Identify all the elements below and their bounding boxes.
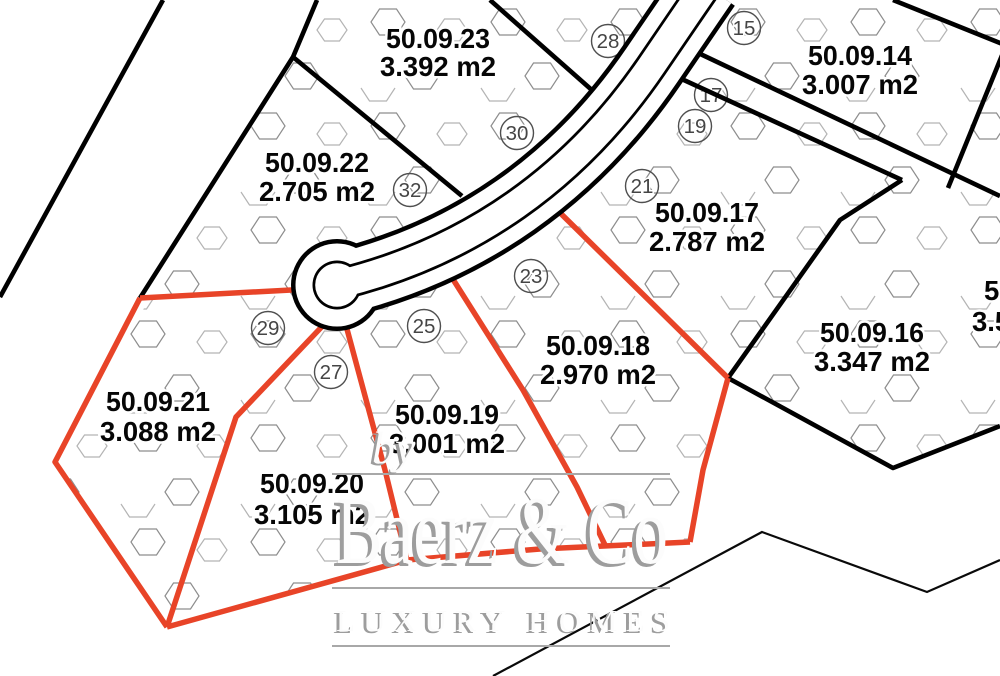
parcel-area: 3.007 m2: [802, 69, 918, 100]
marker-number: 23: [520, 265, 543, 288]
marker-number: 15: [733, 17, 756, 40]
parcel-id: 50.09.21: [106, 386, 210, 417]
parcel-area: 3.392 m2: [380, 51, 496, 82]
marker-number: 27: [320, 361, 343, 384]
parcel-area: 3.5: [972, 306, 1000, 337]
marker-number: 28: [597, 30, 620, 53]
cadastral-parcel-map: 15 17 19 21 23 25 27 28: [0, 0, 1000, 676]
parcel-id: 50.09.17: [655, 197, 759, 228]
parcel-id: 50: [984, 275, 1000, 306]
marker-number: 30: [506, 122, 529, 145]
watermark-brand: Baerz & Co: [336, 477, 668, 584]
parcel-label-50-09-14: 50.09.14 3.007 m2: [802, 40, 918, 100]
parcel-id: 50.09.23: [386, 23, 490, 54]
parcel-area: 2.970 m2: [540, 359, 656, 390]
parcel-label-50-09-18: 50.09.18 2.970 m2: [540, 330, 656, 390]
parcel-id: 50.09.16: [820, 317, 924, 348]
parcel-label-50-09-16: 50.09.16 3.347 m2: [814, 317, 930, 377]
watermark-by: by: [372, 422, 416, 473]
marker-number: 19: [684, 115, 707, 138]
parcel-id: 50.09.14: [808, 40, 913, 71]
marker-number: 29: [257, 317, 280, 340]
parcel-label-50-09-23: 50.09.23 3.392 m2: [380, 23, 496, 82]
parcel-label-50-09-21: 50.09.21 3.088 m2: [100, 386, 216, 447]
parcel-label-50-09-17: 50.09.17 2.787 m2: [649, 197, 765, 257]
marker-number: 25: [413, 315, 436, 338]
marker-number: 32: [399, 179, 422, 202]
marker-number: 21: [631, 175, 654, 198]
parcel-id: 50.09.22: [265, 147, 369, 178]
parcel-area: 2.705 m2: [259, 176, 375, 207]
parcel-area: 3.347 m2: [814, 346, 930, 377]
parcel-label-50-09-22: 50.09.22 2.705 m2: [259, 147, 375, 207]
parcel-id: 50.09.18: [546, 330, 650, 361]
boundary-line: [0, 0, 163, 297]
parcel-area: 3.088 m2: [100, 416, 216, 447]
parcel-area: 2.787 m2: [649, 226, 765, 257]
